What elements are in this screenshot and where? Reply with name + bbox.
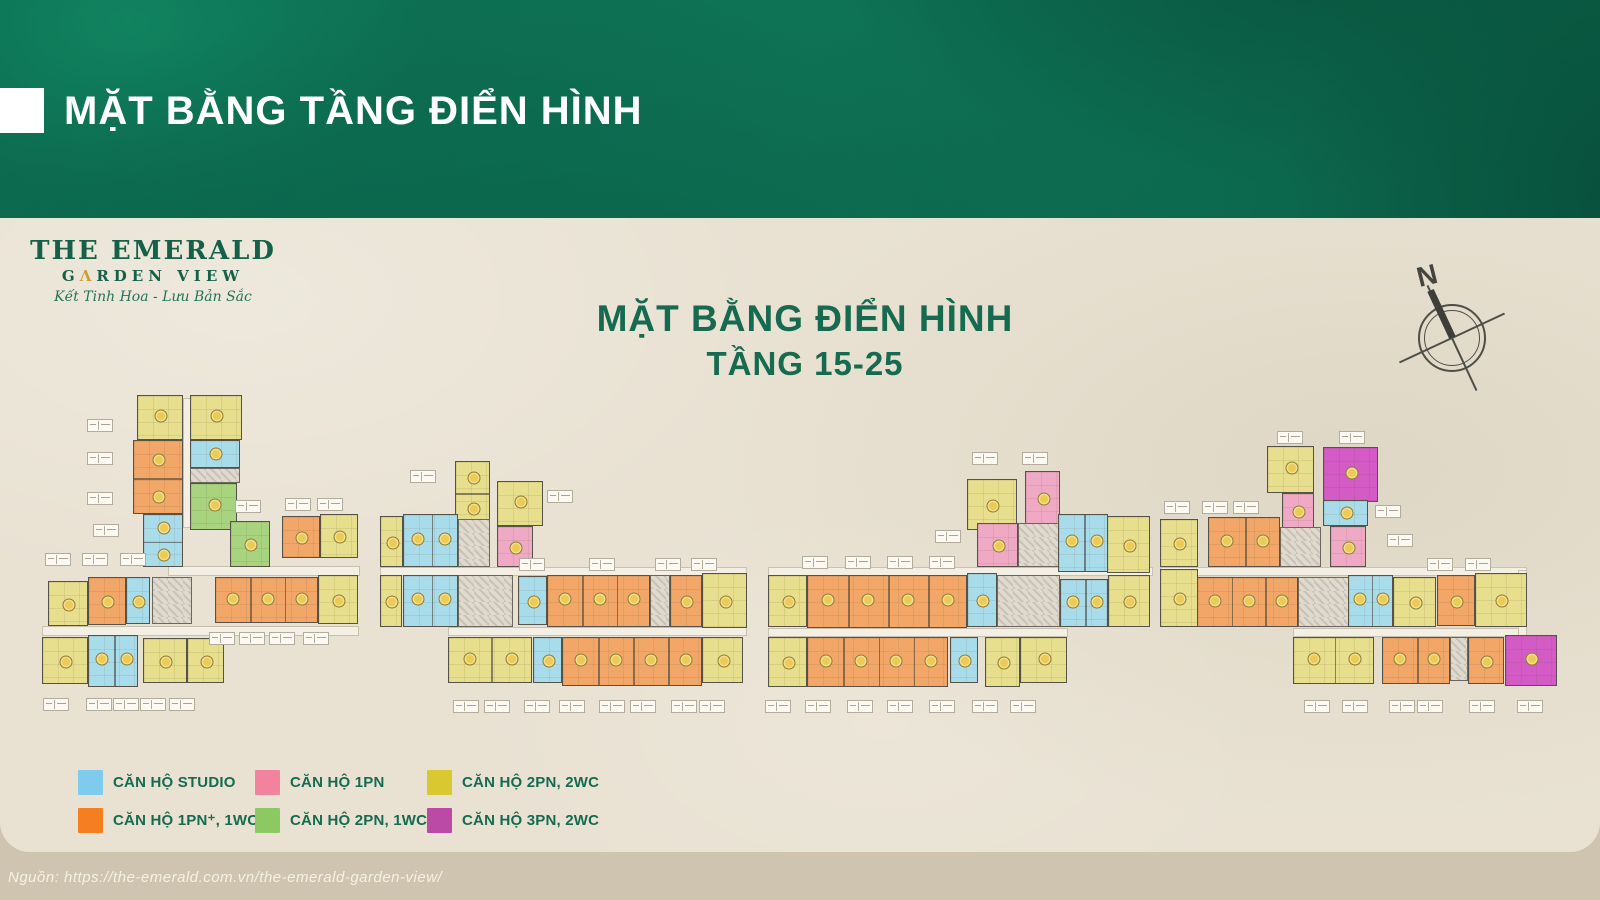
unit-block (282, 516, 320, 558)
area-tag (453, 700, 479, 713)
area-tag (524, 700, 550, 713)
legend-item: CĂN HỘ 2PN, 2WC (427, 770, 657, 795)
legend-swatch (255, 808, 280, 833)
unit-block (1058, 514, 1108, 572)
unit-block (1208, 517, 1280, 567)
unit-block (1025, 471, 1060, 525)
area-tag (1233, 501, 1259, 514)
unit-badge (609, 654, 622, 667)
unit-badge (1067, 595, 1080, 608)
core-block (1450, 637, 1468, 681)
unit-block (702, 573, 747, 628)
unit-block (88, 577, 126, 625)
unit-badge (1174, 593, 1187, 606)
unit-block (518, 576, 547, 625)
legend-label: CĂN HỘ 1PN (290, 774, 385, 791)
unit-badge (515, 496, 528, 509)
unit-block (318, 575, 358, 624)
area-tag (847, 700, 873, 713)
unit-divider (928, 576, 930, 627)
unit-badge (155, 410, 168, 423)
legend-swatch (427, 770, 452, 795)
unit-badge (439, 532, 452, 545)
area-tag (1010, 700, 1036, 713)
unit-block (320, 514, 358, 558)
unit-badge (1345, 466, 1358, 479)
content-sheet: MẶT BẰNG TẦNG ĐIỂN HÌNH THE EMERALD GΛRD… (0, 0, 1600, 852)
unit-divider (134, 478, 182, 480)
unit-badge (296, 532, 309, 545)
unit-badge (819, 654, 832, 667)
legend-label: CĂN HỘ 3PN, 2WC (462, 812, 599, 829)
unit-divider (432, 515, 434, 566)
unit-badge (467, 502, 480, 515)
page: { "header": { "title": "MẶT BẰNG TẦNG ĐI… (0, 0, 1600, 900)
unit-badge (295, 592, 308, 605)
unit-badge (782, 596, 795, 609)
unit-badge (890, 654, 903, 667)
corridor (448, 627, 747, 636)
area-tag (972, 452, 998, 465)
area-tag (671, 700, 697, 713)
unit-block (1348, 575, 1393, 627)
corridor (768, 628, 1068, 637)
area-tag (1517, 700, 1543, 713)
area-tag (239, 632, 265, 645)
unit-badge (63, 598, 76, 611)
unit-block (1107, 516, 1150, 573)
unit-badge (386, 536, 399, 549)
unit-badge (245, 539, 258, 552)
corridor (1293, 628, 1527, 637)
unit-divider (432, 576, 434, 626)
unit-block (1393, 577, 1436, 627)
unit-badge (1354, 593, 1367, 606)
area-tag (1427, 558, 1453, 571)
area-tag (1465, 558, 1491, 571)
unit-block (1382, 637, 1450, 684)
area-tag (113, 698, 139, 711)
unit-block (1323, 500, 1368, 526)
unit-divider (456, 493, 489, 495)
unit-block (1437, 575, 1475, 626)
unit-block (1060, 579, 1108, 627)
unit-badge (467, 471, 480, 484)
unit-badge (977, 595, 990, 608)
core-block (1298, 577, 1349, 627)
area-tag (169, 698, 195, 711)
unit-badge (386, 596, 399, 609)
area-tag (887, 700, 913, 713)
unit-divider (598, 638, 600, 685)
unit-block (1468, 637, 1504, 684)
unit-badge (1308, 653, 1321, 666)
legend-swatch (255, 770, 280, 795)
unit-block (1323, 447, 1378, 502)
legend-label: CĂN HỘ 1PN⁺, 1WC (113, 811, 258, 829)
unit-divider (879, 638, 881, 686)
unit-badge (782, 657, 795, 670)
area-tag (410, 470, 436, 483)
unit-badge (506, 652, 519, 665)
unit-divider (668, 638, 670, 685)
area-tag (1339, 431, 1365, 444)
unit-block (1020, 637, 1067, 683)
unit-badge (902, 593, 915, 606)
area-tag (1417, 700, 1443, 713)
area-tag (630, 700, 656, 713)
unit-badge (1526, 652, 1539, 665)
unit-block (42, 637, 88, 684)
unit-block (1160, 519, 1198, 567)
unit-badge (1496, 595, 1509, 608)
area-tag (802, 556, 828, 569)
unit-badge (593, 593, 606, 606)
unit-badge (227, 592, 240, 605)
area-tag (972, 700, 998, 713)
unit-badge (200, 655, 213, 668)
unit-badge (679, 654, 692, 667)
legend-label: CĂN HỘ 2PN, 2WC (462, 774, 599, 791)
core-block (650, 575, 670, 627)
unit-badge (1242, 594, 1255, 607)
area-tag (559, 700, 585, 713)
unit-block (1197, 577, 1298, 627)
unit-block (190, 440, 240, 468)
area-tag (1202, 501, 1228, 514)
area-tag (87, 492, 113, 505)
unit-badge (1174, 538, 1187, 551)
unit-badge (1340, 506, 1353, 519)
area-tag (317, 498, 343, 511)
area-tag (1164, 501, 1190, 514)
unit-block (48, 581, 88, 626)
unit-badge (1276, 594, 1289, 607)
unit-divider (1335, 638, 1337, 683)
area-tag (45, 553, 71, 566)
unit-block (1267, 446, 1314, 493)
area-tag (86, 698, 112, 711)
unit-badge (333, 594, 346, 607)
unit-badge (1348, 653, 1361, 666)
unit-divider (114, 636, 116, 686)
unit-badge (208, 499, 221, 512)
area-tag (303, 632, 329, 645)
unit-block (380, 575, 402, 627)
unit-block (807, 575, 967, 628)
unit-block (967, 573, 997, 627)
area-tag (1375, 505, 1401, 518)
area-tag (1389, 700, 1415, 713)
unit-badge (1257, 534, 1270, 547)
unit-badge (542, 655, 555, 668)
area-tag (589, 558, 615, 571)
unit-divider (843, 638, 845, 686)
area-tag (209, 632, 235, 645)
legend-item: CĂN HỘ 2PN, 1WC (255, 808, 427, 833)
unit-badge (959, 655, 972, 668)
unit-badge (574, 654, 587, 667)
unit-divider (250, 578, 252, 622)
unit-divider (1245, 518, 1247, 566)
unit-block (768, 575, 807, 627)
area-tag (599, 700, 625, 713)
unit-divider (617, 576, 619, 626)
unit-divider (914, 638, 916, 686)
unit-block (702, 637, 743, 683)
unit-block (1108, 575, 1150, 627)
unit-badge (153, 453, 166, 466)
area-tag (929, 556, 955, 569)
unit-block (403, 514, 458, 567)
area-tag (120, 553, 146, 566)
unit-block (1282, 493, 1314, 528)
unit-badge (987, 499, 1000, 512)
legend-swatch (427, 808, 452, 833)
unit-block (143, 638, 187, 683)
unit-badge (822, 593, 835, 606)
unit-divider (1265, 578, 1267, 626)
area-tag (82, 553, 108, 566)
legend-item: CĂN HỘ STUDIO (78, 770, 255, 795)
unit-block (1160, 569, 1198, 627)
area-tag (269, 632, 295, 645)
area-tag (93, 524, 119, 537)
core-block (997, 575, 1060, 627)
unit-badge (942, 593, 955, 606)
unit-badge (1065, 535, 1078, 548)
legend-label: CĂN HỘ 2PN, 1WC (290, 812, 427, 829)
unit-block (562, 637, 702, 686)
unit-badge (717, 655, 730, 668)
floor-plan (0, 0, 1600, 852)
unit-block (455, 461, 490, 523)
area-tag (87, 452, 113, 465)
area-tag (235, 500, 261, 513)
area-tag (87, 419, 113, 432)
unit-badge (158, 548, 171, 561)
area-tag (547, 490, 573, 503)
unit-badge (1221, 534, 1234, 547)
area-tag (845, 556, 871, 569)
unit-badge (102, 596, 115, 609)
area-tag (1304, 700, 1330, 713)
unit-block (133, 440, 183, 514)
core-block (458, 519, 490, 567)
unit-badge (1376, 593, 1389, 606)
unit-block (950, 637, 978, 683)
area-tag (1387, 534, 1413, 547)
area-tag (805, 700, 831, 713)
unit-badge (925, 654, 938, 667)
unit-badge (1091, 595, 1104, 608)
unit-block (533, 637, 562, 683)
area-tag (1022, 452, 1048, 465)
unit-divider (633, 638, 635, 685)
unit-badge (1037, 493, 1050, 506)
area-tag (140, 698, 166, 711)
unit-badge (439, 593, 452, 606)
unit-block (547, 575, 650, 627)
legend-item: CĂN HỘ 3PN, 2WC (427, 808, 657, 833)
unit-badge (1428, 653, 1441, 666)
area-tag (484, 700, 510, 713)
unit-block (143, 514, 183, 567)
unit-block (88, 635, 138, 687)
unit-badge (559, 593, 572, 606)
legend-label: CĂN HỘ STUDIO (113, 774, 236, 791)
unit-badge (992, 540, 1005, 553)
unit-badge (1038, 652, 1051, 665)
unit-badge (1409, 597, 1422, 610)
area-tag (699, 700, 725, 713)
unit-badge (527, 595, 540, 608)
area-tag (43, 698, 69, 711)
unit-divider (888, 576, 890, 627)
unit-divider (582, 576, 584, 626)
unit-badge (1123, 539, 1136, 552)
unit-divider (848, 576, 850, 627)
unit-block (985, 637, 1020, 687)
unit-badge (60, 655, 73, 668)
legend-swatch (78, 808, 103, 833)
unit-divider (1232, 578, 1234, 626)
unit-badge (1293, 505, 1306, 518)
unit-divider (1084, 515, 1086, 571)
unit-block (1475, 573, 1527, 627)
unit-divider (1085, 580, 1087, 626)
unit-divider (285, 578, 287, 622)
unit-badge (862, 593, 875, 606)
area-tag (887, 556, 913, 569)
unit-badge (158, 522, 171, 535)
unit-badge (510, 541, 523, 554)
unit-badge (997, 657, 1010, 670)
unit-badge (1090, 535, 1103, 548)
unit-badge (210, 447, 223, 460)
unit-block (403, 575, 458, 627)
unit-divider (1372, 576, 1374, 626)
legend-item: CĂN HỘ 1PN⁺, 1WC (78, 808, 255, 833)
unit-divider (491, 638, 493, 682)
unit-badge (261, 592, 274, 605)
unit-block (1293, 637, 1374, 684)
source-note: Nguồn: https://the-emerald.com.vn/the-em… (8, 869, 442, 886)
area-tag (929, 700, 955, 713)
area-tag (765, 700, 791, 713)
unit-badge (95, 653, 108, 666)
unit-badge (211, 410, 224, 423)
core-block (152, 577, 192, 624)
unit-badge (1124, 596, 1137, 609)
area-tag (655, 558, 681, 571)
unit-badge (1451, 595, 1464, 608)
core-block (1018, 523, 1060, 567)
unit-badge (1343, 541, 1356, 554)
unit-block (380, 516, 403, 567)
unit-badge (719, 595, 732, 608)
unit-badge (1481, 655, 1494, 668)
unit-badge (153, 490, 166, 503)
unit-block (807, 637, 948, 687)
unit-divider (1417, 638, 1419, 683)
unit-badge (854, 654, 867, 667)
unit-badge (1285, 462, 1298, 475)
legend-item: CĂN HỘ 1PN (255, 770, 427, 795)
unit-badge (120, 653, 133, 666)
unit-badge (681, 596, 694, 609)
area-tag (1342, 700, 1368, 713)
unit-badge (334, 531, 347, 544)
unit-badge (411, 532, 424, 545)
unit-badge (1394, 653, 1407, 666)
core-block (190, 468, 240, 483)
area-tag (935, 530, 961, 543)
unit-divider (144, 542, 182, 544)
unit-block (497, 481, 543, 526)
unit-badge (411, 593, 424, 606)
unit-block (230, 521, 270, 567)
unit-block (1330, 526, 1366, 567)
legend-swatch (78, 770, 103, 795)
area-tag (1469, 700, 1495, 713)
unit-block (977, 523, 1018, 567)
unit-block (190, 395, 242, 440)
unit-badge (627, 593, 640, 606)
core-block (1280, 527, 1321, 567)
unit-block (1505, 635, 1557, 686)
unit-block (126, 577, 150, 624)
unit-badge (1208, 594, 1221, 607)
area-tag (285, 498, 311, 511)
unit-block (768, 637, 807, 687)
area-tag (519, 558, 545, 571)
legend: CĂN HỘ STUDIOCĂN HỘ 1PNCĂN HỘ 2PN, 2WCCĂ… (78, 763, 657, 839)
unit-block (448, 637, 532, 683)
unit-block (137, 395, 183, 440)
area-tag (691, 558, 717, 571)
unit-badge (464, 652, 477, 665)
unit-block (670, 575, 702, 627)
unit-block (215, 577, 318, 623)
unit-badge (644, 654, 657, 667)
area-tag (1277, 431, 1303, 444)
core-block (458, 575, 513, 627)
unit-badge (133, 595, 146, 608)
unit-badge (160, 655, 173, 668)
